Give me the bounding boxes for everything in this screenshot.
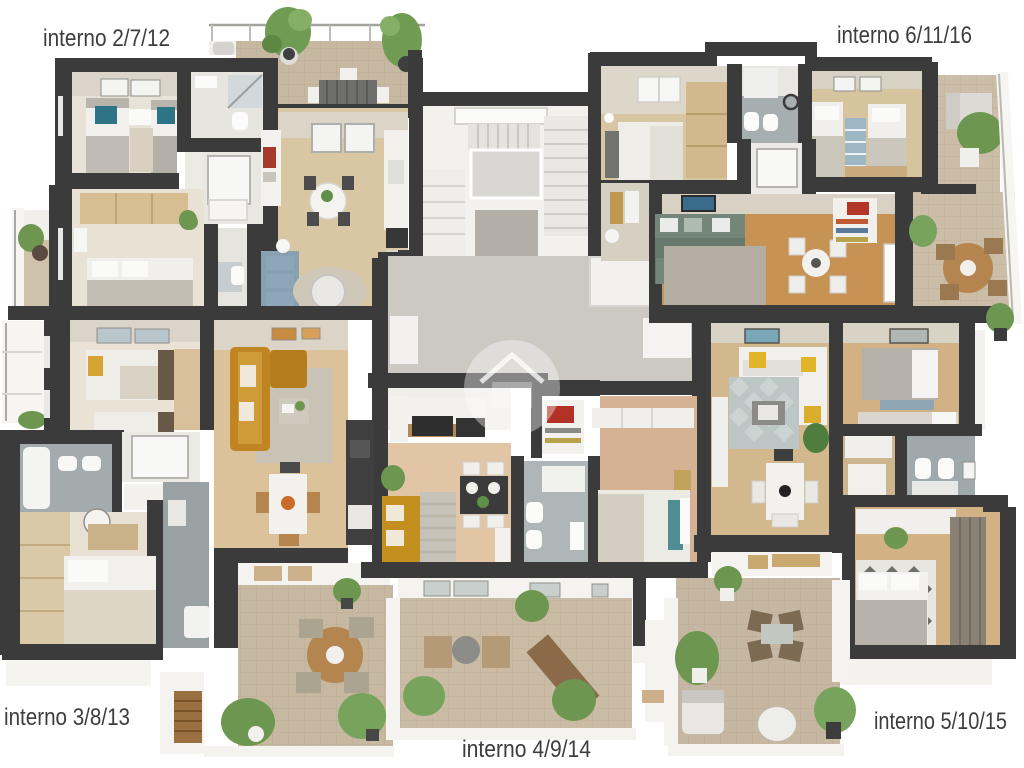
svg-text:interno 5/10/15: interno 5/10/15	[874, 708, 1007, 735]
svg-text:interno 4/9/14: interno 4/9/14	[462, 736, 591, 763]
svg-text:interno 2/7/12: interno 2/7/12	[43, 25, 170, 52]
svg-text:interno 6/11/16: interno 6/11/16	[837, 22, 972, 49]
svg-text:interno 3/8/13: interno 3/8/13	[4, 704, 130, 731]
